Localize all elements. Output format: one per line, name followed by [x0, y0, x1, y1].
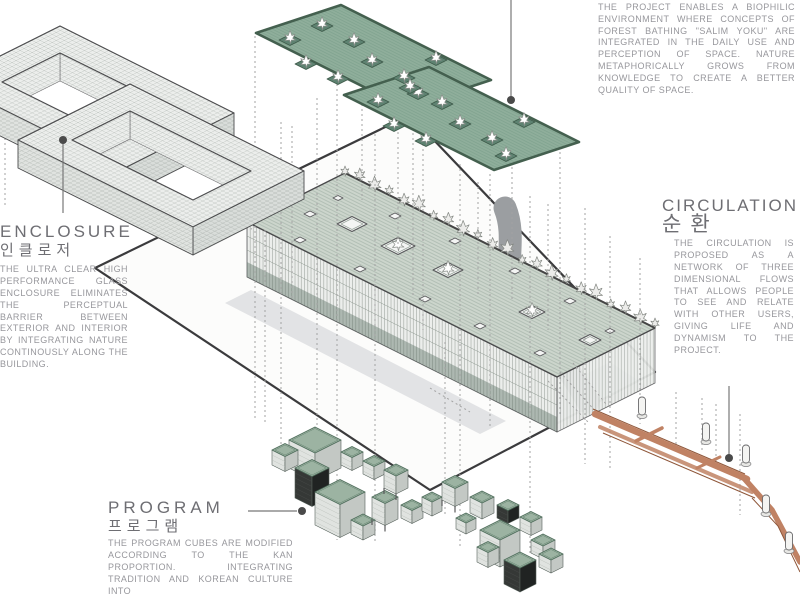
enclosure-leader-dot: [59, 136, 67, 144]
enclosure-model: [0, 26, 304, 255]
enclosure-title: ENCLOSURE: [0, 222, 128, 242]
program-cube: [477, 542, 499, 568]
enclosure-title-korean: 인클로저: [0, 245, 128, 257]
circulation-title-korean: 순환: [662, 219, 796, 231]
enclosure-paragraph: THE ULTRA CLEAR HIGH PERFORMANCE GLASS E…: [0, 264, 128, 370]
diagram-canvas: THE PROJECT ENABLES A BIOPHILIC ENVIRONM…: [0, 0, 800, 600]
circulation-text-block: CIRCULATION 순환 THE CIRCULATION IS PROPOS…: [662, 196, 796, 356]
program-text-block: PROGRAM 프로그램 THE PROGRAM CUBES ARE MODIF…: [108, 498, 293, 597]
program-cube: [470, 491, 494, 519]
circulation-core: [761, 495, 771, 517]
biophilic-paragraph: THE PROJECT ENABLES A BIOPHILIC ENVIRONM…: [598, 2, 795, 96]
program-title-korean: 프로그램: [108, 521, 293, 533]
circulation-core: [701, 423, 711, 445]
program-cube: [520, 512, 542, 536]
program-cube: [372, 491, 398, 526]
program-cube: [341, 447, 363, 471]
program-title: PROGRAM: [108, 498, 293, 518]
program-cube: [363, 456, 385, 480]
program-cube: [442, 476, 468, 507]
program-leader-dot: [298, 507, 306, 515]
circulation-model: [593, 397, 800, 572]
program-cube: [504, 552, 536, 592]
biophilic-text-block: THE PROJECT ENABLES A BIOPHILIC ENVIRONM…: [598, 2, 795, 96]
enclosure-text-block: ENCLOSURE 인클로저 THE ULTRA CLEAR HIGH PERF…: [0, 222, 128, 371]
circulation-leader-dot: [725, 454, 733, 462]
program-cube: [384, 464, 408, 494]
circulation-paragraph: THE CIRCULATION IS PROPOSED AS A NETWORK…: [674, 238, 794, 356]
program-paragraph: THE PROGRAM CUBES ARE MODIFIED ACCORDING…: [108, 538, 293, 597]
program-cube: [456, 513, 476, 534]
circulation-core: [637, 397, 647, 419]
circulation-core: [741, 445, 751, 467]
biophilic-leader-dot: [507, 96, 515, 104]
program-cube: [422, 492, 442, 516]
circulation-core: [784, 532, 794, 554]
program-cube: [351, 514, 375, 540]
program-cube: [401, 500, 423, 524]
program-cube: [539, 548, 563, 573]
